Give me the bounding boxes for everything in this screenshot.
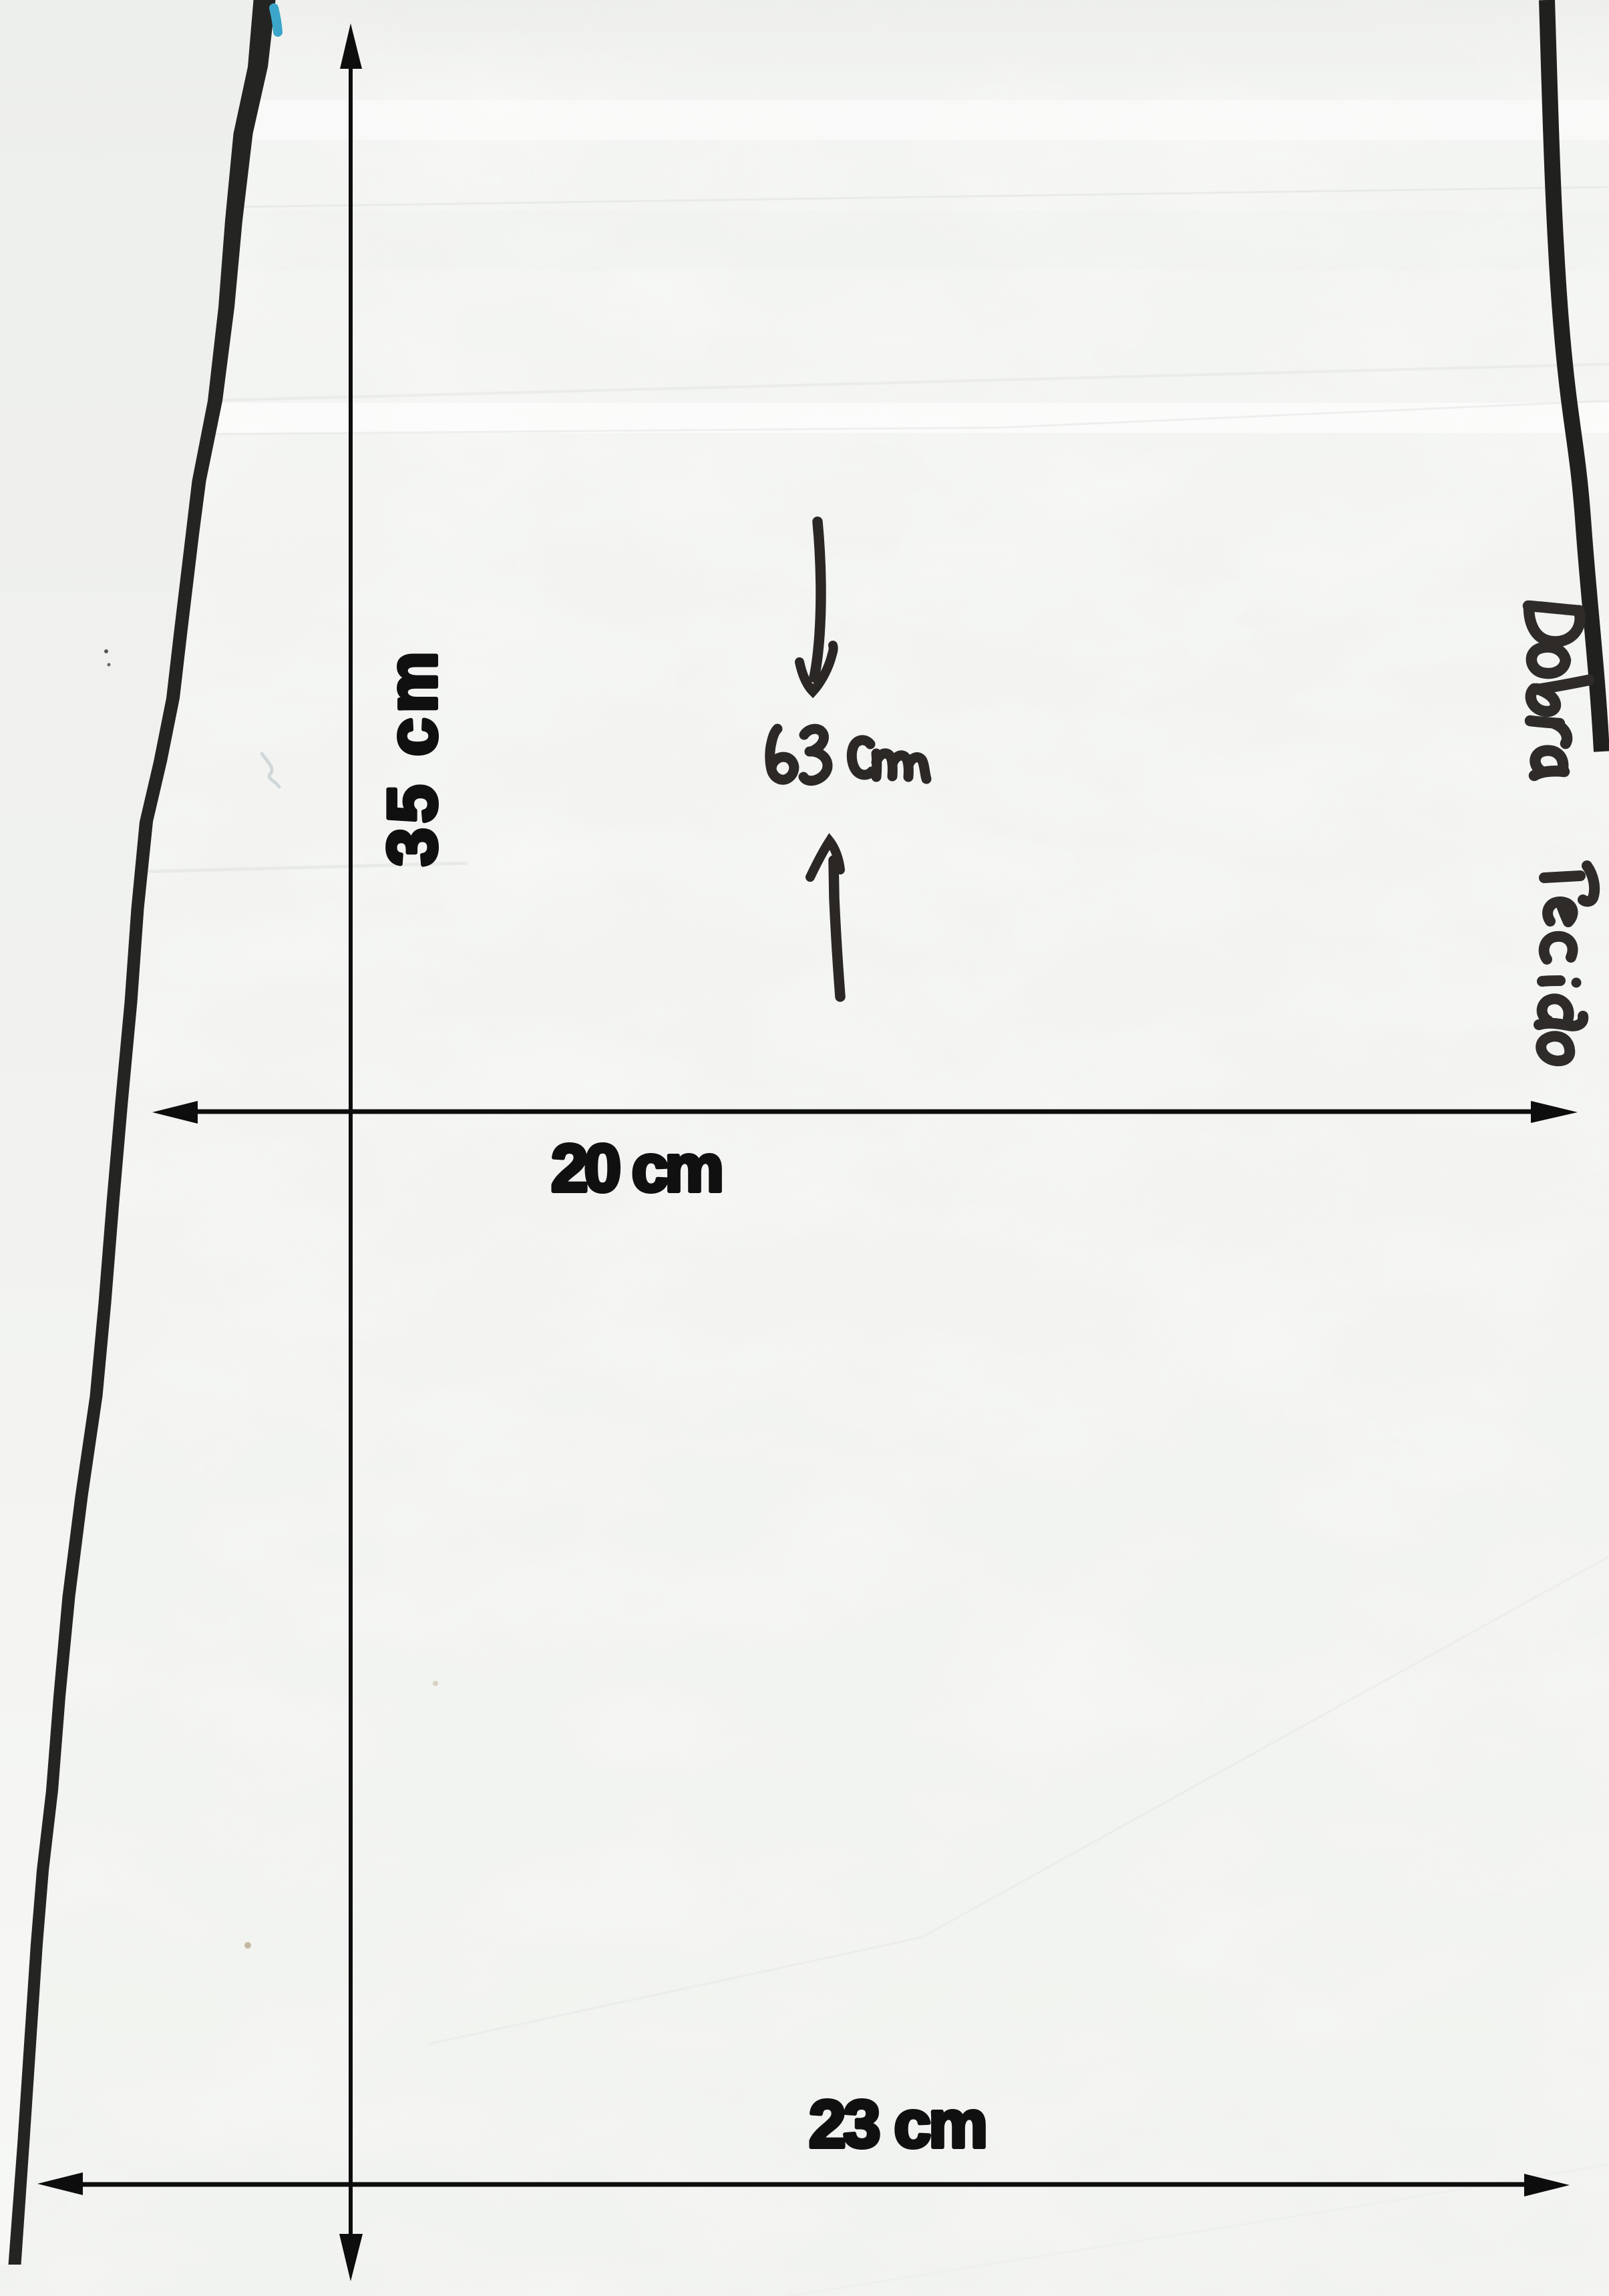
svg-text:23 cm: 23 cm <box>809 2087 988 2162</box>
svg-text:20 cm: 20 cm <box>551 1131 724 1206</box>
